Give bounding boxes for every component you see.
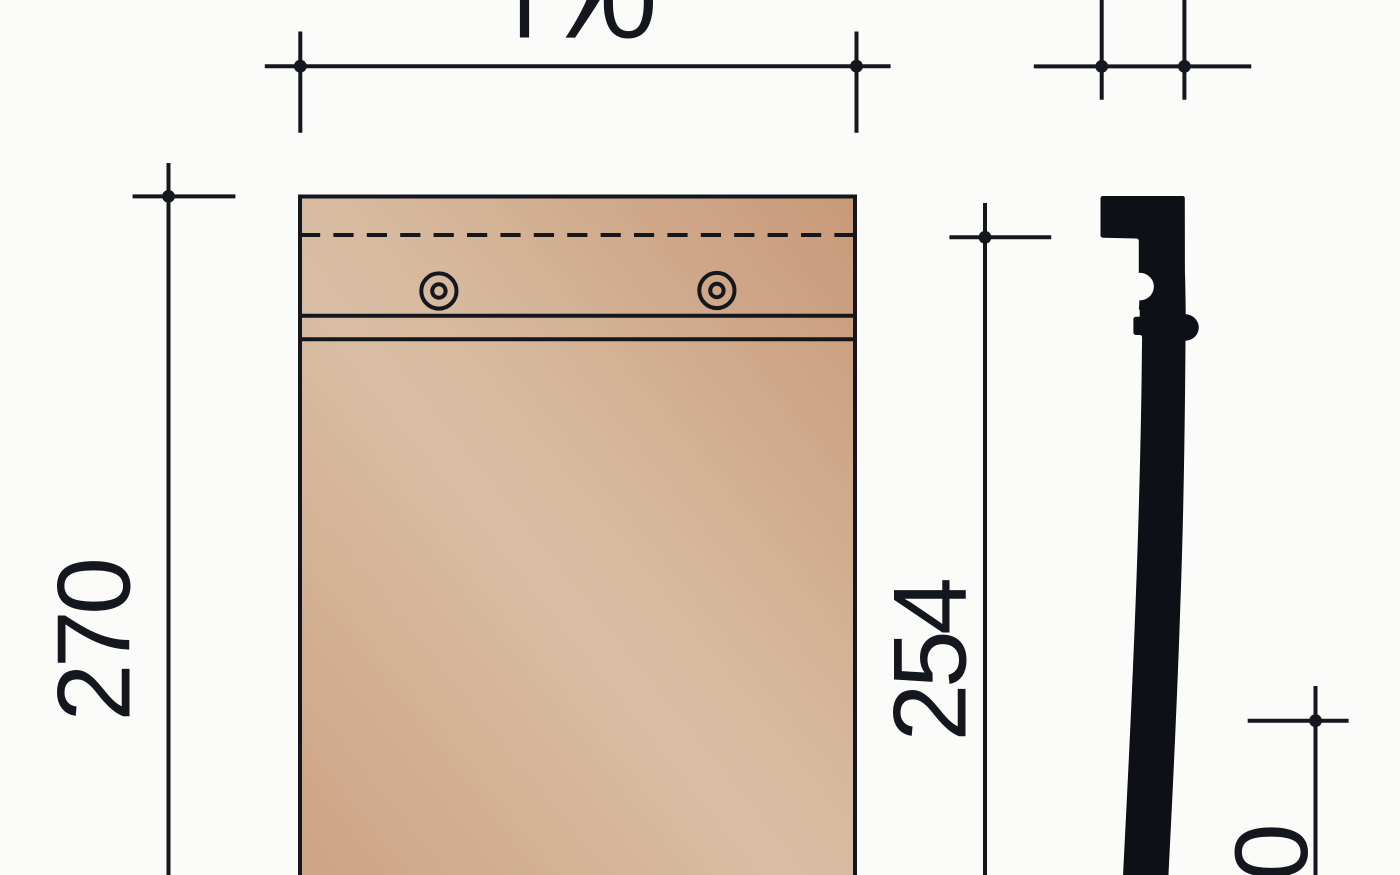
svg-text:270: 270 xyxy=(37,561,153,722)
svg-text:40: 40 xyxy=(1214,827,1330,875)
svg-text:254: 254 xyxy=(873,580,989,742)
svg-text:0: 0 xyxy=(600,0,657,60)
